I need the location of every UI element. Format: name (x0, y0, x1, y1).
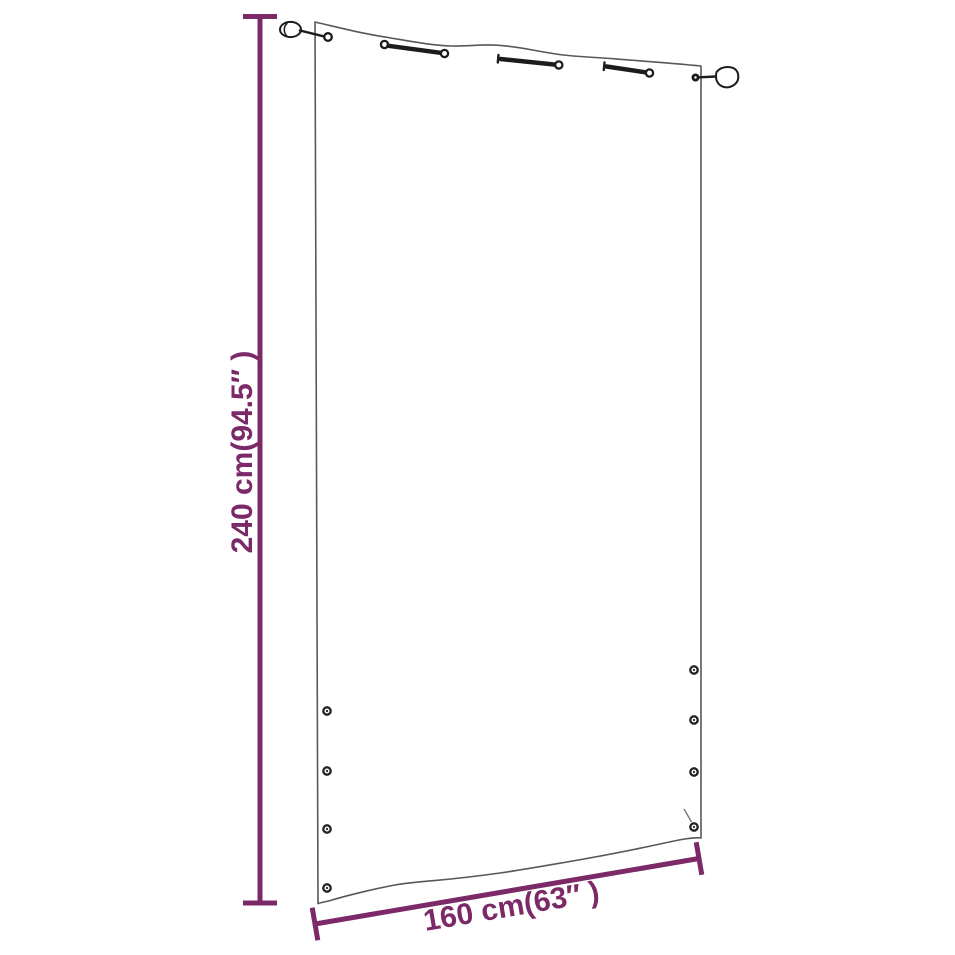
grommet-center (326, 770, 328, 772)
height-dimension-label: 240 cm(94.5″ ) (226, 351, 259, 554)
grommet-center (693, 771, 695, 773)
rod-ring (441, 50, 448, 57)
grommet-center (326, 828, 328, 830)
rod-ring (555, 61, 562, 68)
rod-ring (646, 69, 653, 76)
grommet-center (693, 826, 695, 828)
grommet-center (693, 669, 695, 671)
grommet-center (326, 887, 328, 889)
grommet-center (693, 719, 695, 721)
width-dimension-label: 160 cm(63″ ) (421, 875, 602, 937)
grommet-center (326, 710, 328, 712)
width-dimension-cap-left (312, 908, 318, 941)
product-dimension-diagram: 240 cm(94.5″ ) 160 cm(63″ ) (0, 0, 955, 955)
diagram-canvas: 240 cm(94.5″ ) 160 cm(63″ ) (0, 0, 955, 955)
height-dimension: 240 cm(94.5″ ) (226, 17, 277, 904)
width-dimension-cap-right (696, 842, 702, 875)
rod-stem-right (699, 77, 716, 78)
rod-ring-right-hole (694, 76, 696, 78)
rod-ring (324, 33, 332, 41)
rod-finial-left-rim (284, 24, 287, 37)
curtain-outline (315, 22, 701, 904)
rod-finial-left-icon (280, 22, 301, 37)
rod-finial-right-icon (716, 67, 738, 87)
